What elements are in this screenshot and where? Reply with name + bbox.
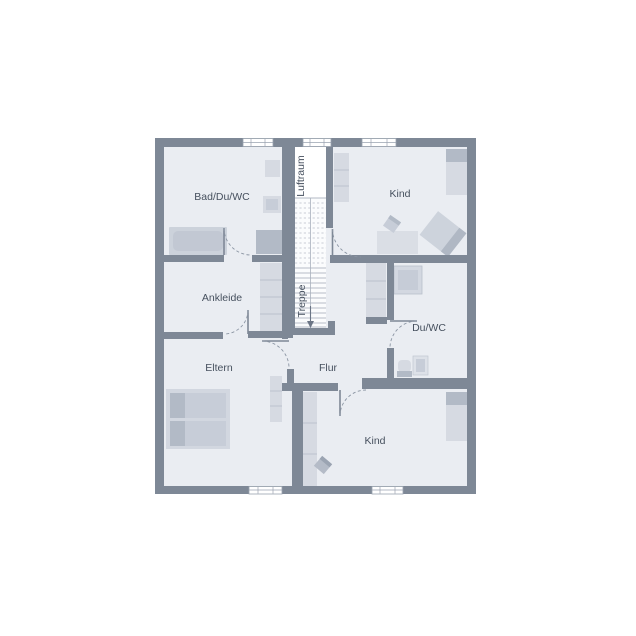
wall-stair-right (326, 147, 333, 228)
room-label-bad-du-wc: Bad/Du/WC (194, 191, 250, 203)
wall-eltern-door-stub (287, 369, 294, 385)
wall-kind-bottom-top-right (362, 378, 467, 389)
room-label-treppe: Treppe (296, 284, 308, 317)
bath-washer (256, 230, 282, 254)
eltern-double-bed (166, 389, 230, 449)
wall-kind-top-bottom (330, 255, 467, 263)
eltern-wardrobe (270, 376, 282, 422)
floor-plan-canvas: Bad/Du/WC Luftraum Kind Ankleide Treppe … (0, 0, 636, 636)
shower (394, 266, 422, 294)
wall-duwc-left-upper (387, 263, 394, 320)
window-bottom-left (249, 487, 282, 495)
toilet (397, 360, 412, 377)
room-label-eltern: Eltern (205, 362, 233, 374)
wall-ankleide-eltern-left (164, 332, 223, 339)
kind-top-desk (377, 231, 418, 254)
wall-left-column (282, 147, 288, 339)
wall-duwc-left-lower (387, 348, 394, 385)
window-top-left (243, 139, 273, 147)
window-bottom-right (372, 487, 403, 495)
bathtub (169, 227, 227, 255)
wall-bad-ankleide-left (164, 255, 224, 262)
floor-plan: Bad/Du/WC Luftraum Kind Ankleide Treppe … (0, 0, 636, 636)
room-label-kind-top: Kind (389, 188, 410, 200)
wall-stair-left (288, 147, 295, 335)
wall-party (292, 383, 303, 486)
room-label-luftraum: Luftraum (295, 155, 307, 197)
wall-stair-right-stub (328, 321, 335, 335)
hall-niche-wardrobe (366, 263, 386, 317)
wall-bad-ankleide-right (252, 255, 288, 262)
kind-top-bed (446, 149, 467, 195)
room-label-du-wc: Du/WC (412, 322, 446, 334)
kind-top-wardrobe (334, 153, 349, 202)
bath-sink (263, 196, 281, 213)
outer-wall-right (467, 138, 476, 494)
window-top-center (303, 139, 331, 147)
room-label-ankleide: Ankleide (202, 292, 242, 304)
outer-wall-bottom (155, 486, 476, 494)
window-top-right (362, 139, 396, 147)
wall-ankleide-eltern-right (248, 331, 293, 338)
wall-niche-cap (366, 317, 387, 324)
room-label-flur: Flur (319, 362, 338, 374)
kind-bottom-shelf (303, 392, 317, 486)
kind-bottom-bed (446, 392, 467, 441)
room-label-kind-bottom: Kind (364, 435, 385, 447)
wall-kind-bottom-top-left (282, 383, 338, 391)
wc-sink (413, 356, 428, 375)
outer-wall-left (155, 138, 164, 494)
bath-cabinet (265, 160, 280, 177)
wall-stair-bottom (293, 328, 328, 335)
ankleide-wardrobe (260, 263, 282, 331)
